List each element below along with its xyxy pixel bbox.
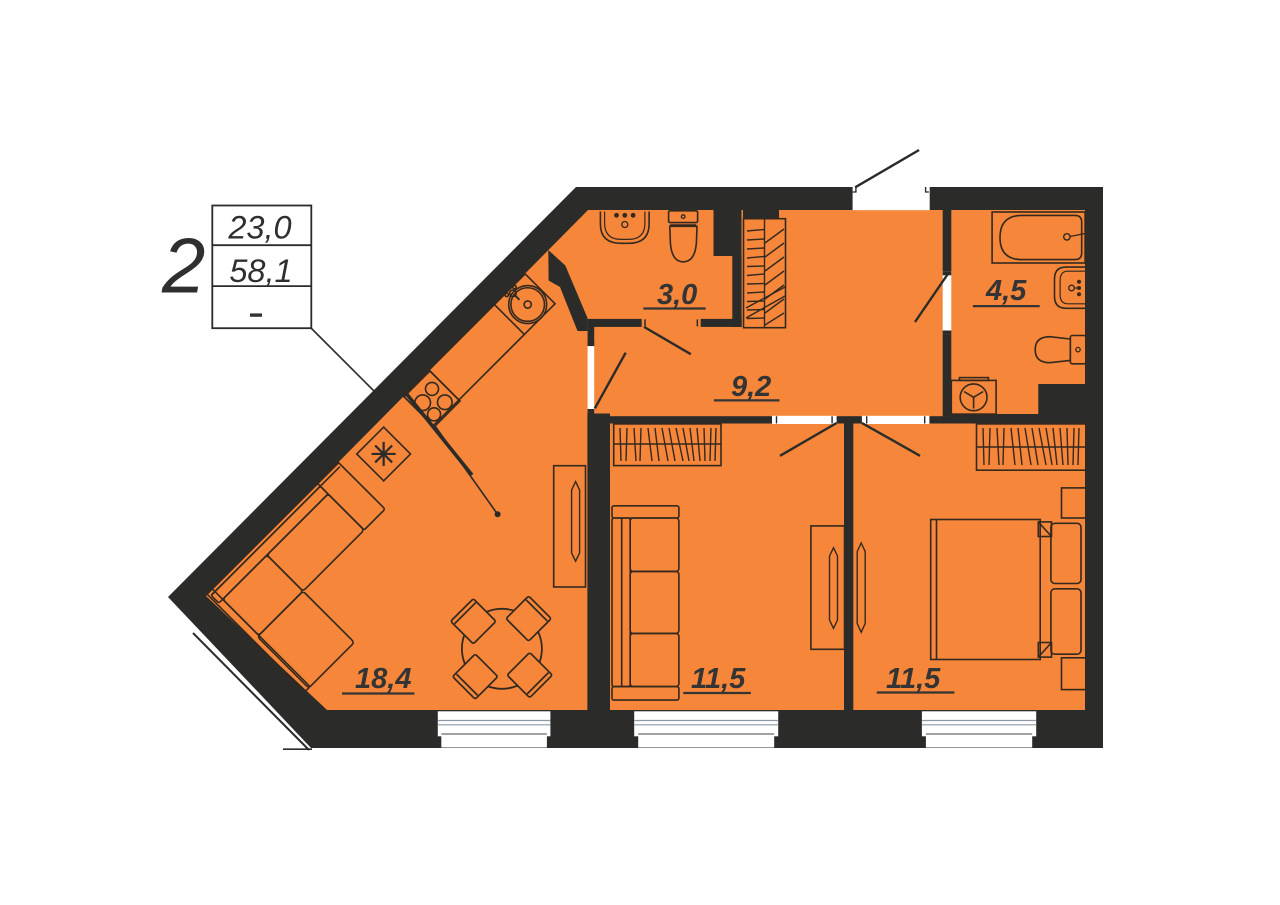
svg-text:18,4: 18,4 <box>355 663 411 695</box>
svg-text:11,5: 11,5 <box>886 663 941 695</box>
svg-text:58,1: 58,1 <box>229 253 292 289</box>
svg-text:9,2: 9,2 <box>731 371 771 403</box>
svg-text:3,0: 3,0 <box>657 279 697 311</box>
svg-text:2: 2 <box>161 222 205 310</box>
svg-text:4,5: 4,5 <box>985 275 1027 307</box>
svg-text:11,5: 11,5 <box>691 663 746 695</box>
svg-text:23,0: 23,0 <box>227 210 291 246</box>
